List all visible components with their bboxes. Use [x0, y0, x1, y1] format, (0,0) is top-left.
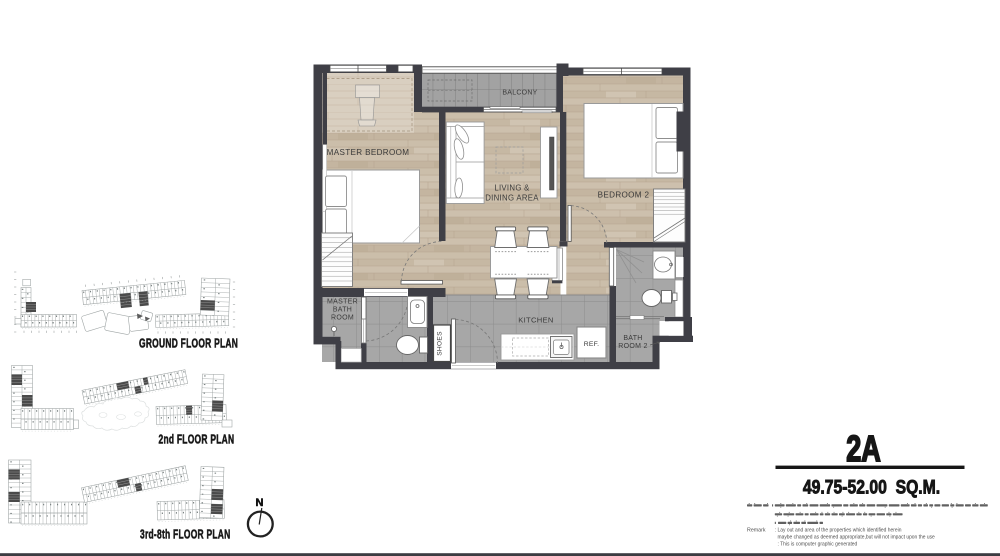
svg-text:BALCONY: BALCONY	[502, 90, 537, 97]
svg-text:2nd FLOOR PLAN: 2nd FLOOR PLAN	[159, 433, 235, 447]
svg-text:Remark: Remark	[747, 527, 766, 533]
svg-text:49.75-52.00 SQ.M.: 49.75-52.00 SQ.M.	[803, 476, 940, 498]
svg-text:LIVING &: LIVING &	[494, 184, 530, 193]
svg-text:SHOES: SHOES	[437, 331, 444, 356]
svg-text:maybe changed as deemed approp: maybe changed as deemed appropriate,but …	[778, 534, 935, 540]
svg-text:ROOM: ROOM	[331, 315, 354, 322]
svg-text:REF.: REF.	[584, 341, 600, 348]
svg-text:N: N	[256, 497, 264, 509]
svg-text:BATH: BATH	[623, 335, 642, 342]
svg-text:ROOM 2: ROOM 2	[618, 343, 647, 350]
svg-text:: This is computer graphic gen: : This is computer graphic generated	[778, 541, 858, 547]
svg-text:DINING AREA: DINING AREA	[485, 194, 539, 203]
svg-text:MASTER: MASTER	[327, 299, 358, 306]
svg-text:3rd-8th FLOOR PLAN: 3rd-8th FLOOR PLAN	[140, 528, 231, 542]
svg-text:BATH: BATH	[333, 307, 352, 314]
svg-text:BEDROOM 2: BEDROOM 2	[598, 191, 650, 200]
svg-text:: Lay out and area of the prop: : Lay out and area of the properties whi…	[775, 527, 902, 533]
svg-text:MASTER BEDROOM: MASTER BEDROOM	[327, 148, 410, 157]
svg-text:2A: 2A	[846, 428, 881, 469]
svg-text:GROUND FLOOR PLAN: GROUND FLOOR PLAN	[139, 337, 238, 351]
svg-text:KITCHEN: KITCHEN	[518, 316, 553, 325]
